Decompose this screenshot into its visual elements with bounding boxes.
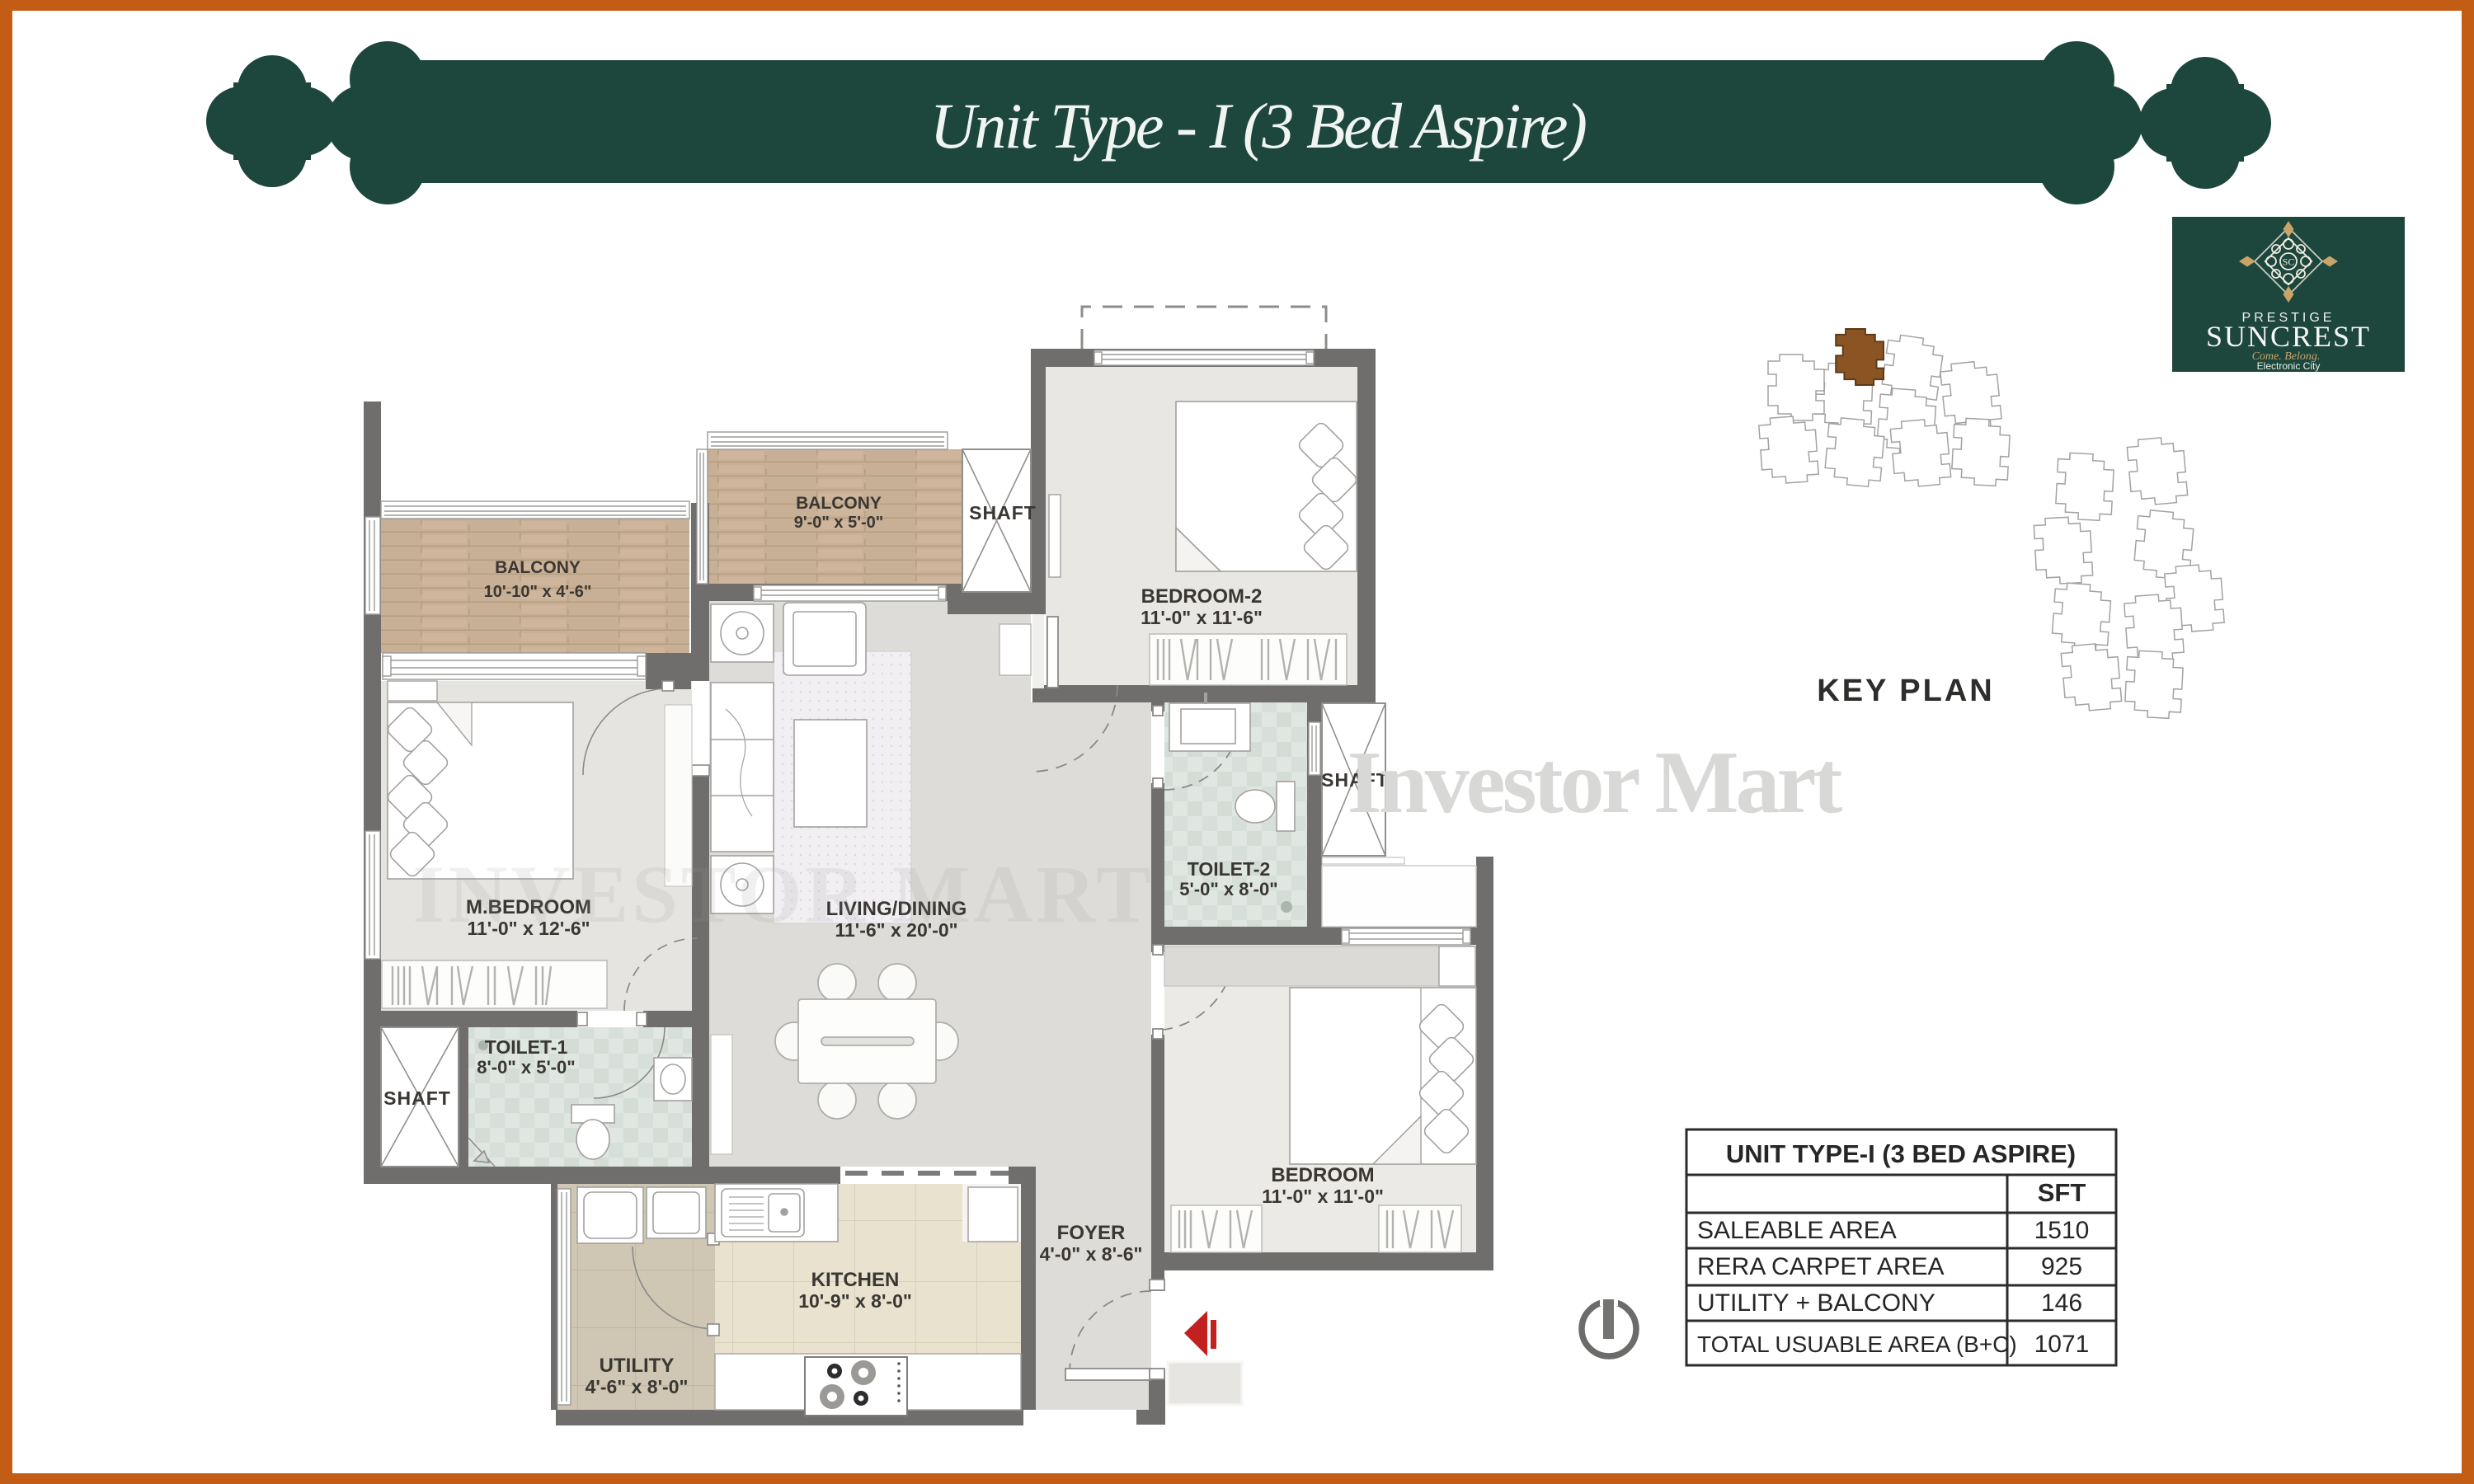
svg-text:SALEABLE AREA: SALEABLE AREA xyxy=(1697,1217,1897,1244)
svg-text:FOYER: FOYER xyxy=(1057,1222,1126,1244)
svg-text:8'-0" x 5'-0": 8'-0" x 5'-0" xyxy=(477,1057,575,1078)
svg-text:BEDROOM-2: BEDROOM-2 xyxy=(1141,585,1263,608)
svg-text:Electronic City: Electronic City xyxy=(2257,360,2321,372)
svg-text:10'-9" x 8'-0": 10'-9" x 8'-0" xyxy=(798,1290,912,1312)
svg-text:11'-0" x 11'-0": 11'-0" x 11'-0" xyxy=(1262,1186,1384,1207)
svg-text:SFT: SFT xyxy=(2038,1178,2086,1207)
svg-text:4'-6" x 8'-0": 4'-6" x 8'-0" xyxy=(586,1376,689,1397)
svg-text:SHAFT: SHAFT xyxy=(383,1087,451,1109)
svg-text:5'-0" x 8'-0": 5'-0" x 8'-0" xyxy=(1179,879,1277,899)
svg-text:BEDROOM: BEDROOM xyxy=(1271,1164,1374,1186)
svg-text:Unit Type - I (3 Bed Aspire): Unit Type - I (3 Bed Aspire) xyxy=(929,90,1586,162)
svg-text:SHAFT: SHAFT xyxy=(969,502,1037,524)
svg-text:11'-0" x 11'-6": 11'-0" x 11'-6" xyxy=(1141,607,1263,628)
svg-text:BALCONY: BALCONY xyxy=(796,494,882,513)
svg-text:TOTAL USUABLE AREA (B+C): TOTAL USUABLE AREA (B+C) xyxy=(1697,1331,2017,1357)
svg-text:TOILET-2: TOILET-2 xyxy=(1188,858,1271,880)
svg-text:UNIT TYPE-I (3 BED ASPIRE): UNIT TYPE-I (3 BED ASPIRE) xyxy=(1726,1139,2076,1168)
svg-text:9'-0" x 5'-0": 9'-0" x 5'-0" xyxy=(794,514,884,532)
svg-text:KITCHEN: KITCHEN xyxy=(811,1269,900,1291)
svg-text:UTILITY + BALCONY: UTILITY + BALCONY xyxy=(1697,1289,1935,1317)
svg-text:1071: 1071 xyxy=(2034,1331,2090,1358)
svg-text:SUNCREST: SUNCREST xyxy=(2206,320,2371,353)
svg-text:RERA CARPET AREA: RERA CARPET AREA xyxy=(1697,1253,1945,1280)
svg-text:TOILET-1: TOILET-1 xyxy=(485,1036,568,1058)
svg-text:BALCONY: BALCONY xyxy=(495,558,581,577)
svg-text:KEY PLAN: KEY PLAN xyxy=(1817,674,1994,708)
svg-text:10'-10" x 4'-6": 10'-10" x 4'-6" xyxy=(484,583,592,601)
svg-text:SC: SC xyxy=(2283,256,2295,268)
svg-text:4'-0" x 8'-6": 4'-0" x 8'-6" xyxy=(1040,1243,1143,1265)
svg-text:925: 925 xyxy=(2041,1253,2082,1280)
svg-text:INVESTOR MART: INVESTOR MART xyxy=(412,848,1155,940)
svg-text:Investor Mart: Investor Mart xyxy=(1348,734,1843,832)
svg-text:UTILITY: UTILITY xyxy=(600,1355,675,1377)
svg-text:1510: 1510 xyxy=(2034,1217,2090,1244)
svg-text:146: 146 xyxy=(2041,1289,2082,1317)
